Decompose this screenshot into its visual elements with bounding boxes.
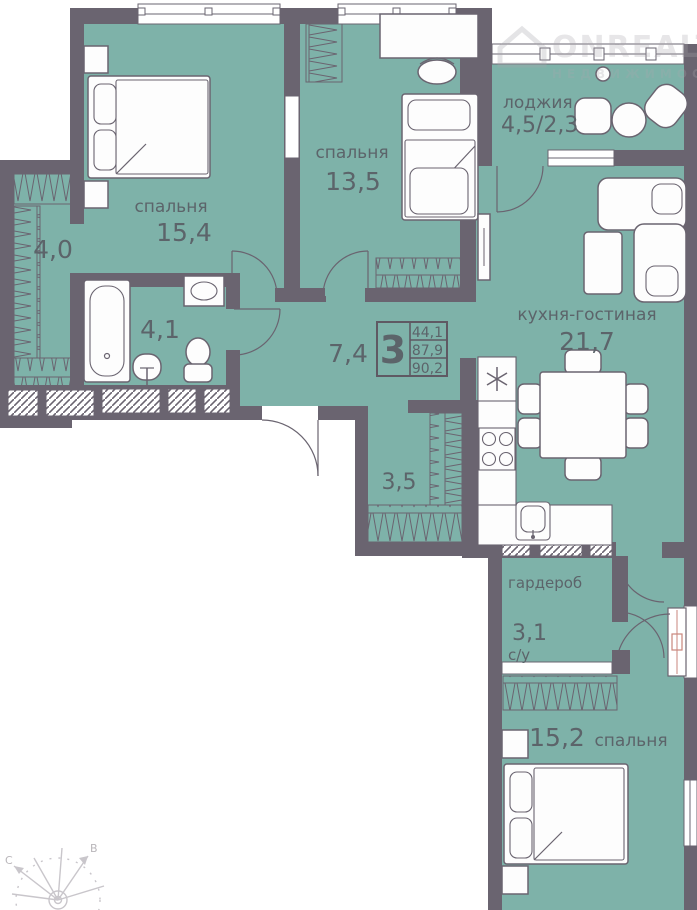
compass-east-label: В <box>90 842 98 855</box>
door-gap <box>235 288 275 302</box>
coffee-table-icon <box>584 232 622 294</box>
hallway-small-area: 3,5 <box>382 470 417 495</box>
stove-icon <box>479 428 515 470</box>
chair-icon <box>418 58 456 84</box>
window-icon <box>548 150 614 166</box>
tv-icon <box>478 214 490 280</box>
hallway-area: 7,4 <box>328 339 368 368</box>
toilet-icon <box>184 338 212 382</box>
wardrobe-label: гардероб <box>508 574 582 592</box>
single-bed-icon <box>402 94 478 220</box>
sink-icon <box>184 276 224 306</box>
wardrobe-rail-icon <box>430 413 462 505</box>
bathtub-icon <box>84 280 130 382</box>
kitchen-sink-icon <box>516 502 550 540</box>
wardrobe-rail-icon <box>376 258 468 288</box>
wardrobe-rail-icon <box>306 24 342 82</box>
compass-north-label: С <box>5 854 13 867</box>
wardrobe-area: 3,1 <box>512 621 547 646</box>
wardrobe-rail-icon <box>14 206 40 358</box>
nightstand-icon <box>502 730 528 758</box>
wardrobe-rail-icon <box>14 358 72 388</box>
wardrobe-niche-area: 4,0 <box>33 235 73 264</box>
window-icon <box>684 780 697 846</box>
wc-label: с/у <box>508 646 530 664</box>
watermark-brand-text: ONREALT <box>552 30 697 65</box>
bedroom-top-mid-label: спальня <box>315 143 388 163</box>
area-value: 87,9 <box>412 343 443 359</box>
loggia-area: 4,5/2,3 <box>501 113 578 138</box>
rooms-count: 3 <box>380 328 406 372</box>
chair-icon <box>575 98 611 134</box>
desk-icon <box>380 14 478 58</box>
floor-plan-drawing: 3 44,1 87,9 90,2 спальня 15,4 4,0 4,1 сп… <box>0 0 697 910</box>
wardrobe-rail-icon <box>14 174 72 204</box>
wardrobe-rail-icon <box>368 505 462 542</box>
door-gap <box>616 542 662 558</box>
wall-niche-icon <box>285 96 299 158</box>
fridge-icon <box>478 357 516 401</box>
window-icon <box>138 4 280 24</box>
bedroom-bottom-label: спальня <box>594 731 667 751</box>
bathroom-area: 4,1 <box>140 315 180 344</box>
nightstand-icon <box>502 866 528 894</box>
bedroom-top-mid-area: 13,5 <box>325 167 381 196</box>
watermark-subtitle-text: НЕДВИЖИМОСТЬ <box>552 67 697 81</box>
living-area-value: 44,1 <box>412 325 443 341</box>
bedroom-top-left-label: спальня <box>134 197 207 217</box>
kitchen-living-label: кухня-гостиная <box>517 305 656 325</box>
loggia-label: лоджия <box>503 93 573 113</box>
wardrobe-rail-icon <box>503 676 617 710</box>
bedroom-top-left-area: 15,4 <box>156 218 212 247</box>
nightstand-icon <box>84 46 108 73</box>
opening-niche <box>72 222 84 275</box>
double-bed-icon <box>88 76 210 178</box>
floor-plan-canvas: 3 44,1 87,9 90,2 спальня 15,4 4,0 4,1 сп… <box>0 0 697 910</box>
kitchen-living-area: 21,7 <box>559 327 615 356</box>
door-gap <box>325 288 365 302</box>
nightstand-icon <box>84 181 108 208</box>
bedroom-bottom-area: 15,2 <box>529 723 585 752</box>
round-table-icon <box>612 103 646 137</box>
info-box: 3 44,1 87,9 90,2 <box>377 322 447 377</box>
total-area-value: 90,2 <box>412 361 443 377</box>
double-bed-icon <box>504 764 628 864</box>
